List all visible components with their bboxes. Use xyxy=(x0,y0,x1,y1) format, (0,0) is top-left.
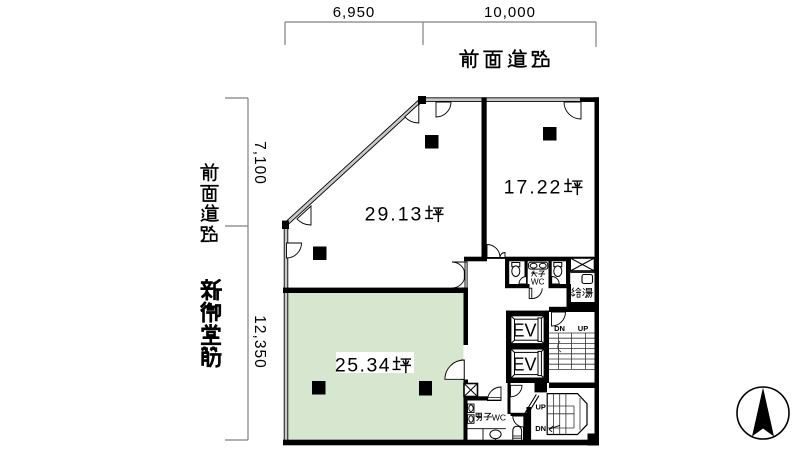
svg-text:UP: UP xyxy=(535,403,545,412)
svg-text:DN: DN xyxy=(535,424,546,433)
svg-text:17.22: 17.22 xyxy=(504,177,563,199)
svg-text:29.13: 29.13 xyxy=(365,204,424,226)
svg-text:25.34: 25.34 xyxy=(335,355,391,377)
svg-text:WC: WC xyxy=(531,277,545,286)
svg-text:7,100: 7,100 xyxy=(251,141,268,185)
svg-text:EV: EV xyxy=(512,355,536,375)
svg-text:10,000: 10,000 xyxy=(484,4,536,21)
svg-text:6,950: 6,950 xyxy=(333,4,376,21)
svg-text:UP: UP xyxy=(578,324,588,333)
svg-text:12,350: 12,350 xyxy=(251,315,268,368)
svg-text:WC: WC xyxy=(492,412,506,422)
svg-text:DN: DN xyxy=(554,324,565,333)
svg-text:EV: EV xyxy=(512,321,536,341)
